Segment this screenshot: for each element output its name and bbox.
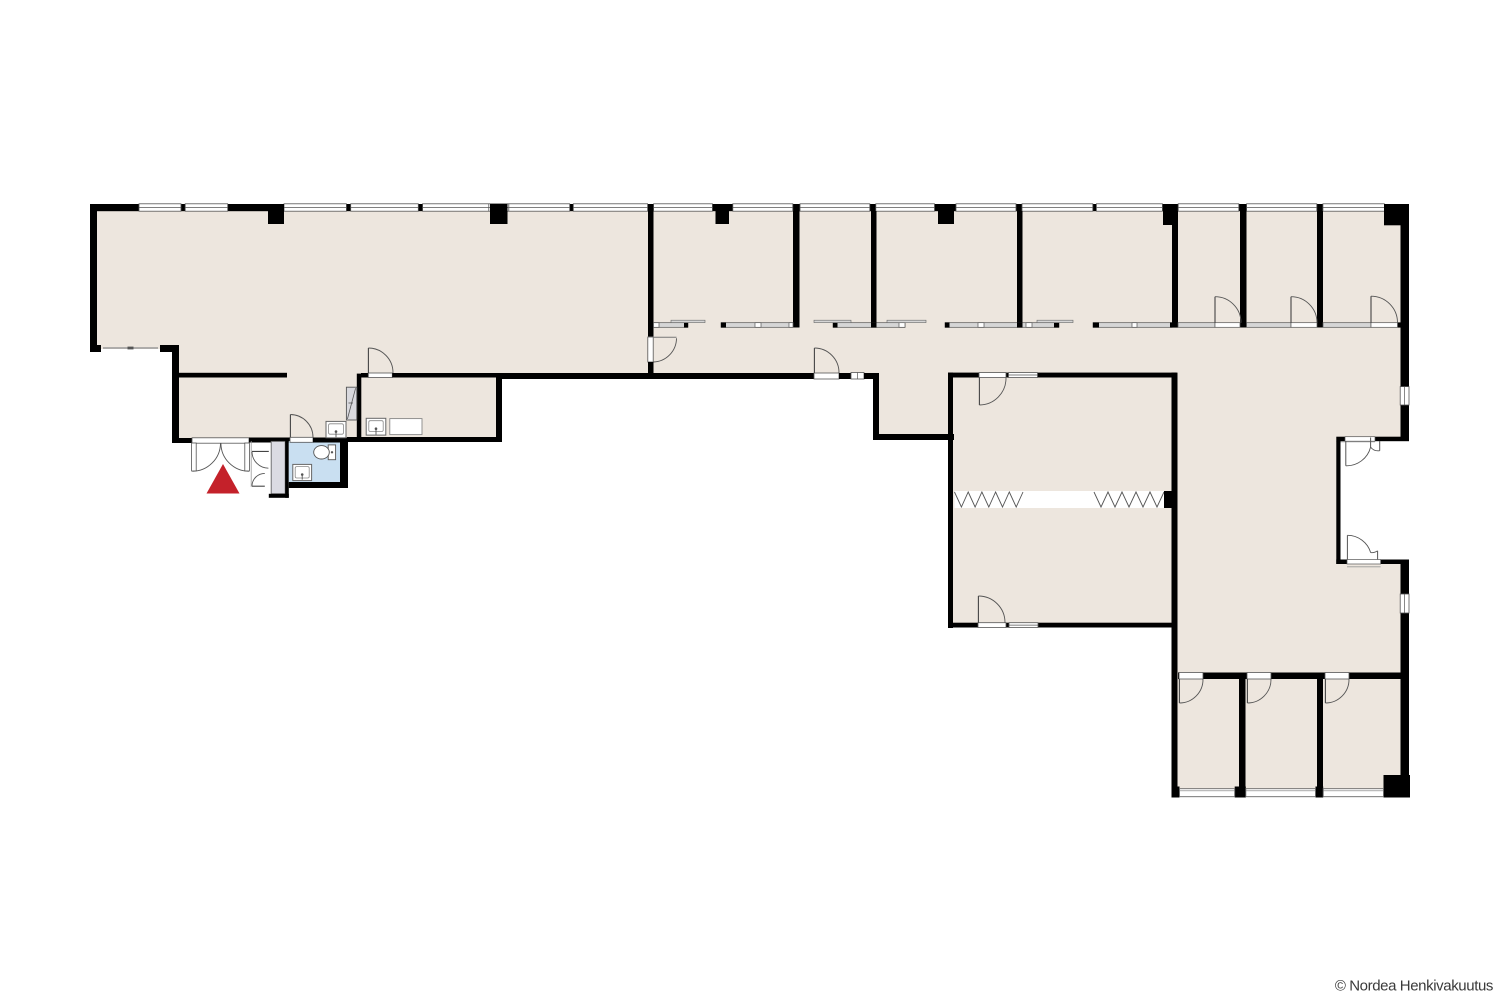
svg-text:© Nordea Henkivakuutus: © Nordea Henkivakuutus [1335,978,1493,995]
